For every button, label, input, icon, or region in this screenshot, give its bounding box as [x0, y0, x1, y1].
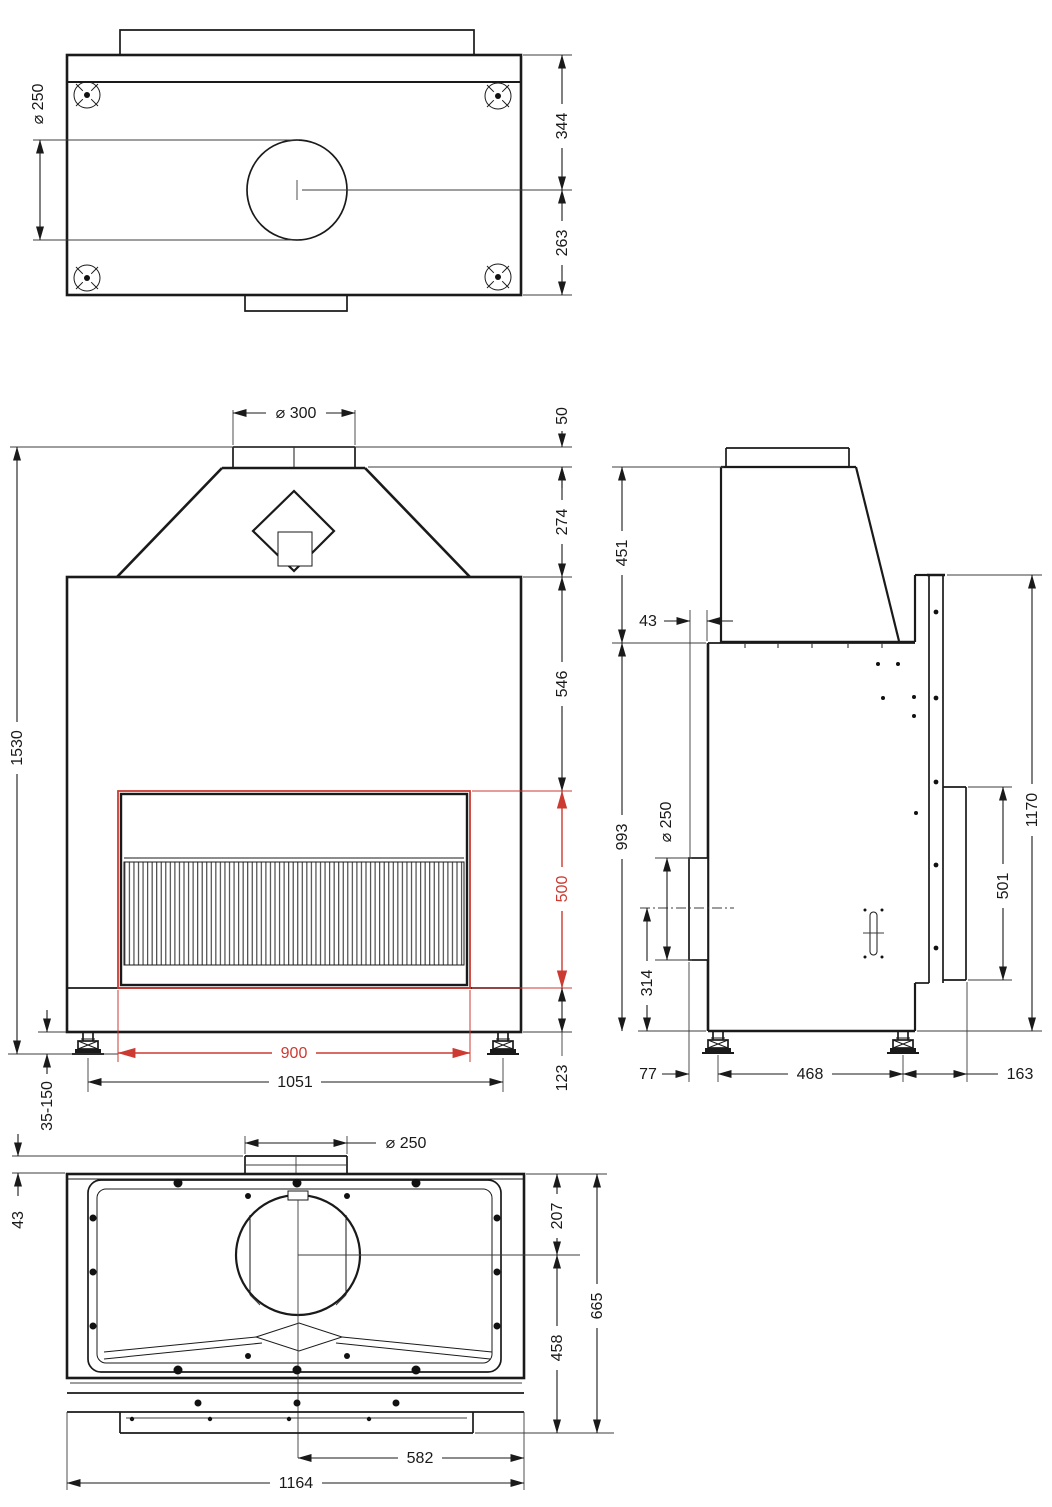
svg-text:500: 500: [554, 876, 571, 903]
svg-text:468: 468: [797, 1066, 824, 1083]
svg-text:43: 43: [639, 613, 657, 630]
technical-drawing-page: ⌀ 250 344 263: [0, 0, 1052, 1507]
dim-side-hood-height: 451: [613, 531, 631, 575]
svg-text:1164: 1164: [279, 1475, 314, 1492]
dim-top-flue-diameter: ⌀ 250: [29, 74, 47, 134]
svg-text:163: 163: [1007, 1066, 1034, 1083]
svg-text:665: 665: [589, 1293, 606, 1320]
svg-text:458: 458: [549, 1335, 566, 1362]
dim-side-rear-flue-diameter: ⌀ 250: [657, 792, 675, 852]
dim-bottom-total-depth: 665: [588, 1284, 606, 1328]
dim-front-collar-height: 50: [553, 401, 571, 431]
side-glass-panel: [943, 787, 966, 980]
dim-bottom-top-to-center: 207: [548, 1194, 566, 1238]
dim-bottom-total-width: 1164: [270, 1474, 322, 1492]
dim-front-base-height: 123: [553, 1056, 571, 1100]
svg-text:43: 43: [10, 1211, 27, 1229]
dim-front-leg-range: 35-150: [38, 1074, 56, 1138]
front-view: ⌀ 300 1530 50 274 546: [8, 401, 572, 1138]
dim-front-opening-width: 900: [272, 1044, 316, 1062]
svg-text:50: 50: [554, 407, 571, 425]
svg-text:1170: 1170: [1024, 793, 1041, 828]
dim-front-flue-diameter: ⌀ 300: [266, 404, 326, 422]
dim-top-344: 344: [553, 104, 571, 148]
svg-text:274: 274: [554, 509, 571, 536]
dim-bottom-center-to-side: 582: [398, 1449, 442, 1467]
top-view-outline: [67, 30, 521, 311]
dim-front-feet-spacing: 1051: [269, 1073, 321, 1091]
top-view: ⌀ 250 344 263: [29, 30, 572, 311]
svg-text:123: 123: [554, 1065, 571, 1092]
grill-stripes: [124, 862, 464, 965]
side-hood-outline: [721, 448, 915, 648]
dim-top-263: 263: [553, 221, 571, 265]
dim-front-total-height: 1530: [8, 722, 26, 774]
dim-side-body-height: 993: [613, 815, 631, 859]
svg-text:501: 501: [995, 873, 1012, 900]
bottom-collar-tab: [245, 1156, 347, 1174]
dim-side-front-height: 1170: [1023, 784, 1041, 836]
dim-bottom-collar-offset: 43: [9, 1205, 27, 1235]
dim-front-hood-height: 274: [553, 500, 571, 544]
hood-diamond-vent: [253, 491, 334, 571]
svg-text:⌀ 300: ⌀ 300: [276, 405, 317, 422]
svg-text:344: 344: [554, 113, 571, 140]
bottom-base-bands: [67, 1383, 524, 1433]
svg-text:77: 77: [639, 1066, 657, 1083]
fireplace-dimension-drawing: ⌀ 250 344 263: [0, 0, 1052, 1507]
svg-text:35-150: 35-150: [39, 1081, 56, 1131]
side-view-dimensions: 451 43 993 ⌀ 250: [612, 467, 1042, 1083]
front-feet: [8, 1032, 519, 1054]
door-handle: [863, 909, 884, 959]
dim-front-top-to-opening: 546: [553, 662, 571, 706]
svg-text:⌀ 250: ⌀ 250: [30, 84, 47, 125]
svg-text:1530: 1530: [9, 730, 26, 766]
firebox-opening: [118, 791, 470, 988]
side-feet: [702, 1031, 919, 1053]
svg-text:314: 314: [639, 970, 656, 997]
side-view: 451 43 993 ⌀ 250: [612, 448, 1042, 1083]
dim-side-flue-center-height: 314: [638, 961, 656, 1005]
dim-side-rear-offset: 43: [633, 612, 663, 630]
dim-bottom-flue-diameter: ⌀ 250: [376, 1134, 436, 1152]
dim-side-glass-height: 501: [994, 864, 1012, 908]
bottom-view: ⌀ 250 43 207 458: [9, 1134, 614, 1492]
dim-bottom-center-to-base: 458: [548, 1326, 566, 1370]
svg-text:451: 451: [614, 540, 631, 567]
side-body-outline: [708, 575, 945, 1031]
svg-text:207: 207: [549, 1203, 566, 1230]
svg-text:546: 546: [554, 671, 571, 698]
svg-text:⌀ 250: ⌀ 250: [386, 1135, 427, 1152]
svg-text:1051: 1051: [277, 1074, 313, 1091]
svg-text:582: 582: [407, 1450, 434, 1467]
svg-text:900: 900: [281, 1045, 308, 1062]
dim-side-leg-to-front: 163: [998, 1065, 1042, 1083]
svg-text:263: 263: [554, 230, 571, 257]
dim-side-leg-spacing: 468: [788, 1065, 832, 1083]
dim-side-back-to-leg: 77: [634, 1065, 662, 1083]
dim-front-opening-height: 500: [553, 867, 571, 911]
svg-text:⌀ 250: ⌀ 250: [658, 802, 675, 843]
rear-flue-outlet: [689, 858, 708, 960]
svg-text:993: 993: [614, 824, 631, 851]
